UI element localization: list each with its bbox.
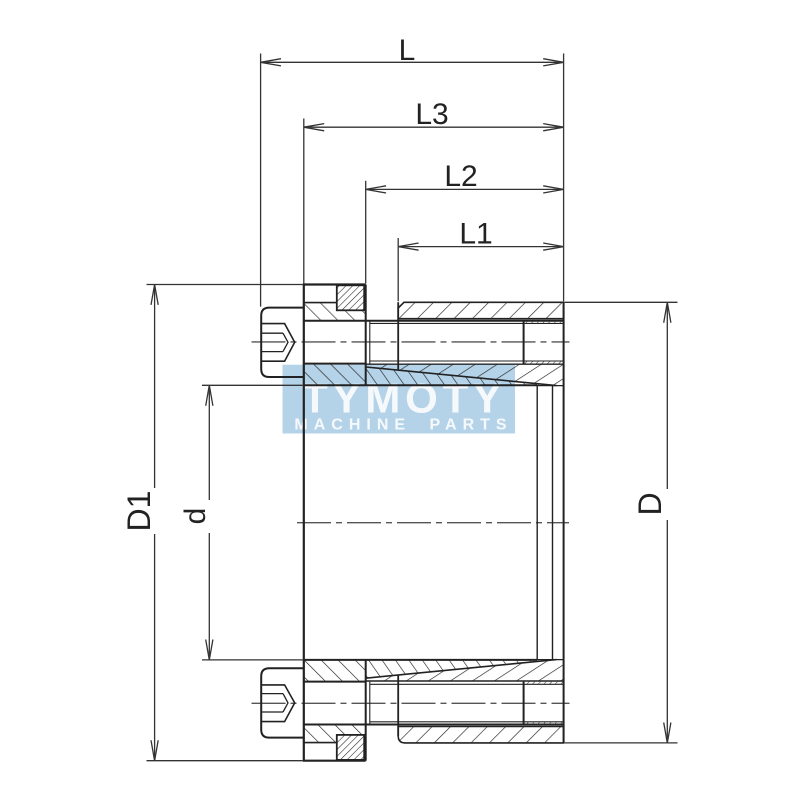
svg-text:MACHINE PARTS: MACHINE PARTS [294,417,512,434]
svg-text:L3: L3 [415,98,448,131]
svg-text:D1: D1 [121,491,157,532]
svg-text:L: L [399,34,416,67]
svg-text:L1: L1 [459,218,492,251]
svg-text:D: D [632,492,668,515]
svg-text:L2: L2 [444,160,477,193]
svg-text:d: d [179,508,212,525]
